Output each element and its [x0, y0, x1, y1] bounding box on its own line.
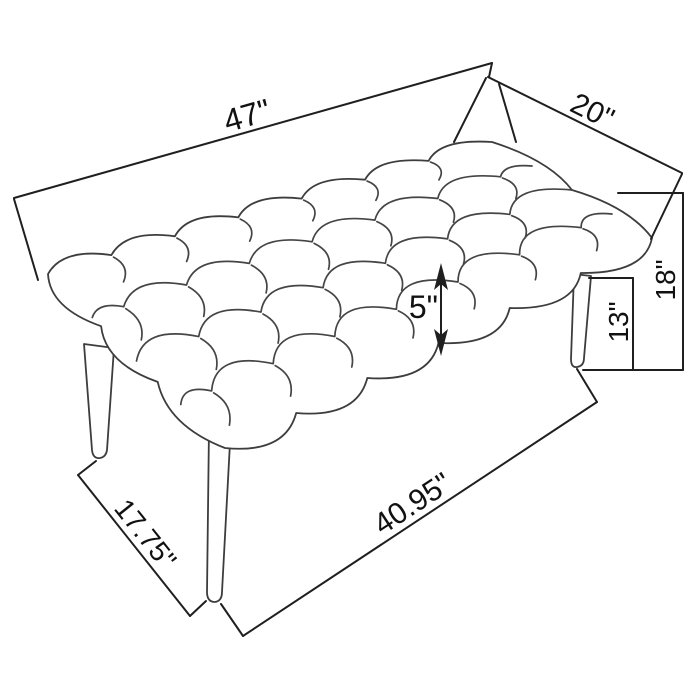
- dim-label-depth: 20": [565, 87, 619, 136]
- dim-ext-leg-span-side-bottom: [190, 601, 206, 616]
- dim-tick-length-right: [489, 63, 492, 77]
- diagram-canvas: 47" 20" 18" 13" 5" 40.95" 17.75": [0, 0, 700, 700]
- bench-seat-outline: [48, 142, 652, 449]
- dim-label-length: 47": [220, 92, 275, 139]
- dim-ext-length-left: [14, 199, 38, 280]
- dim-ext-leg-span-front-right: [577, 369, 597, 402]
- dim-label-cushion-thickness: 5": [409, 289, 438, 325]
- dim-ext-leg-span-side-top: [78, 461, 96, 475]
- dim-ext-depth-left: [499, 84, 516, 142]
- dim-label-leg-span-side: 17.75": [108, 493, 182, 575]
- dim-ext-leg-span-front-left: [221, 604, 243, 636]
- dim-label-leg-height: 13": [603, 301, 634, 342]
- dim-ext-depth-right: [651, 174, 682, 239]
- bench-leg-front-right: [207, 424, 231, 602]
- bench-dimension-diagram: 47" 20" 18" 13" 5" 40.95" 17.75": [0, 0, 700, 700]
- dim-ext-length-right: [454, 78, 486, 142]
- dim-label-height: 18": [650, 259, 681, 300]
- bench-leg-front-left: [84, 344, 114, 458]
